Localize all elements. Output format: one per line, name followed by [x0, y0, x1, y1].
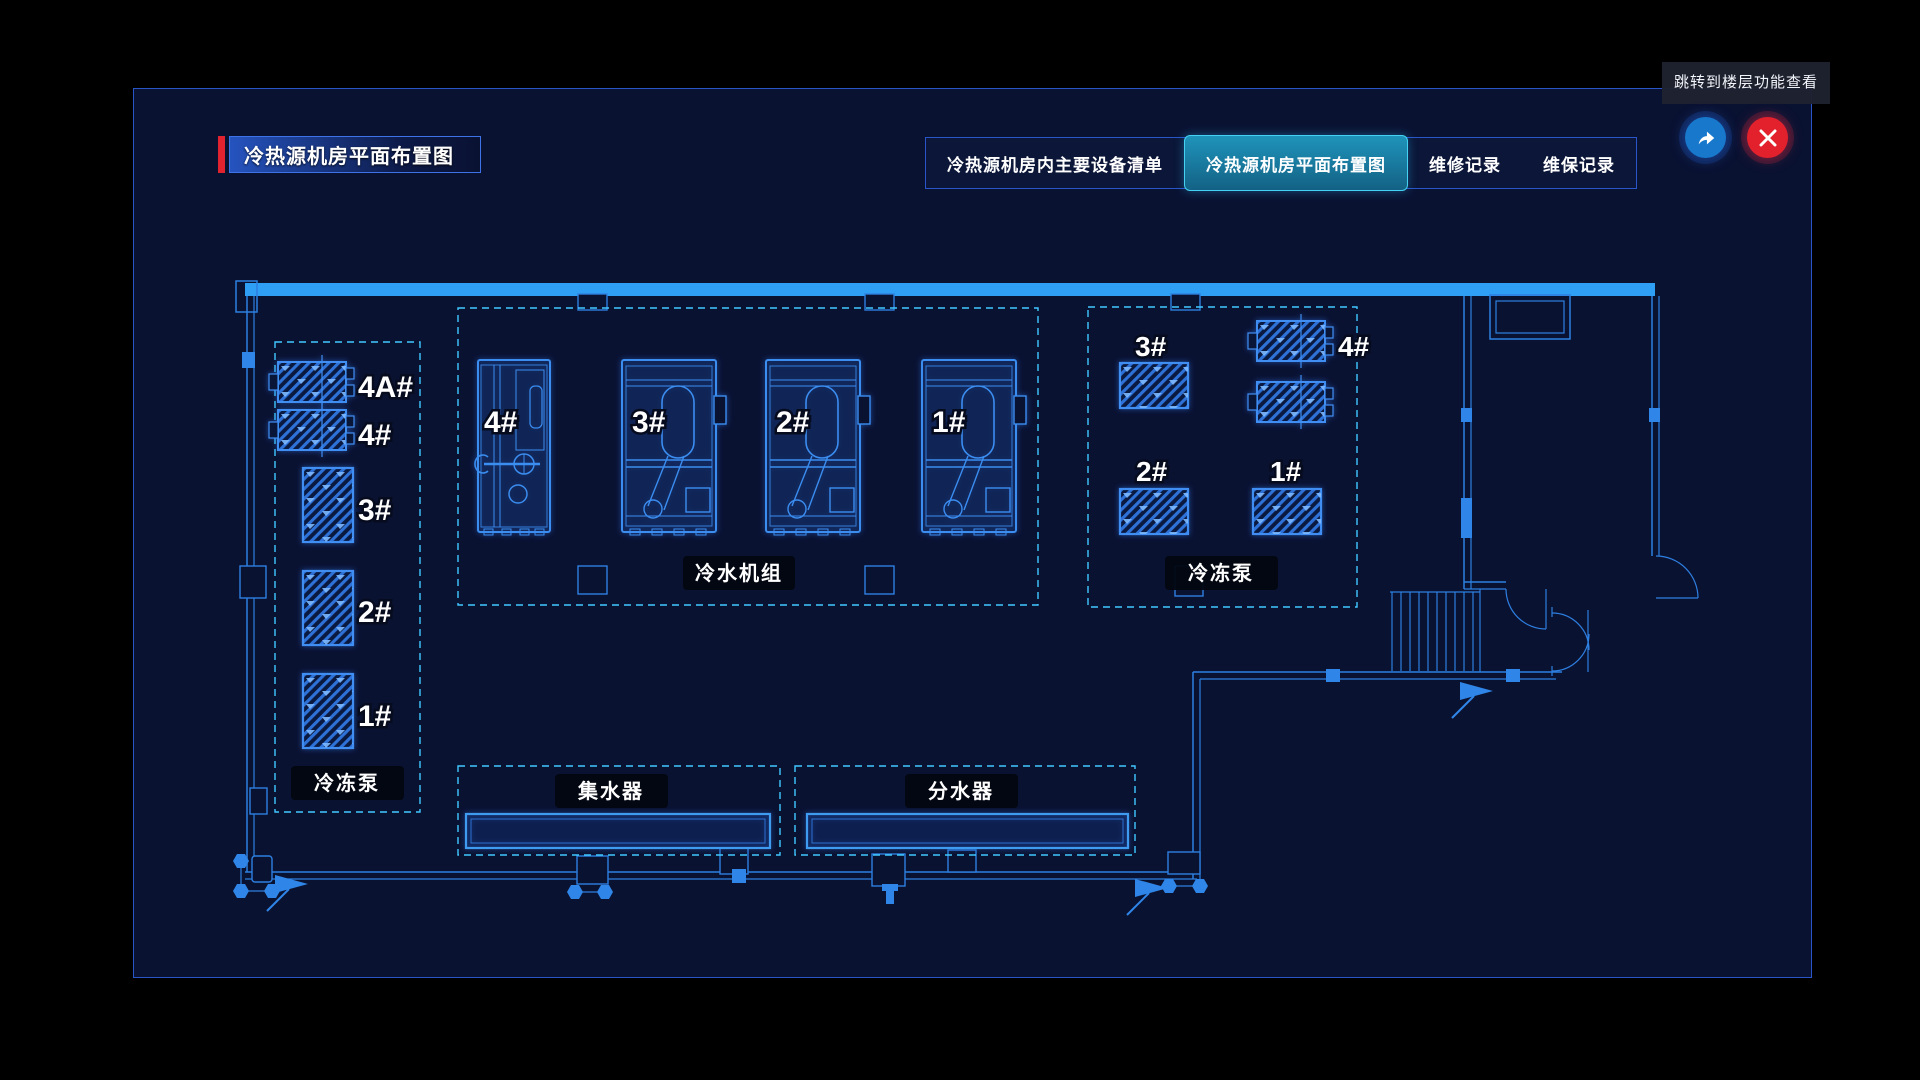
chiller-label: 2#: [776, 406, 810, 439]
pump-4a: [269, 355, 354, 409]
chiller-label: 4#: [484, 406, 518, 439]
pump-1: [1253, 489, 1321, 534]
pump-4a: [1248, 314, 1333, 368]
close-icon: [1759, 129, 1777, 147]
pump-2: [1120, 489, 1188, 534]
left-pump-group: 4A# 4# 3# 2# 1# 冷冻泵: [269, 342, 420, 812]
close-button[interactable]: [1747, 117, 1788, 158]
chiller-2: [766, 360, 870, 535]
window-box: [1490, 295, 1570, 339]
pump-label: 4A#: [358, 371, 413, 404]
chiller-4: [475, 360, 550, 535]
pump-label: 1#: [358, 700, 392, 733]
chiller-group: 4# 3# 2# 1# 冷水机组: [458, 308, 1038, 605]
title-accent-bar: [218, 136, 225, 173]
chiller-1: [922, 360, 1026, 535]
pump-3: [1120, 363, 1188, 408]
chiller-label: 3#: [632, 406, 666, 439]
group-label: 冷冻泵: [314, 771, 380, 795]
group-label: 冷水机组: [695, 561, 783, 585]
tab-floor-plan[interactable]: 冷热源机房平面布置图: [1184, 135, 1408, 191]
screen: 4A# 4# 3# 2# 1# 冷冻泵 4# 3# 2# 1# 冷水机组: [0, 0, 1920, 1080]
collector-group: 集水器: [458, 766, 780, 855]
top-wall: [245, 283, 1655, 296]
chiller-label: 1#: [932, 406, 966, 439]
pump-label: 4#: [1338, 331, 1370, 362]
tab-equipment-list[interactable]: 冷热源机房内主要设备清单: [926, 138, 1184, 188]
tab-maintenance-records[interactable]: 维保记录: [1522, 138, 1636, 188]
right-pump-group: 3# 4# 2# 1# 冷冻泵: [1088, 307, 1370, 607]
pump-4: [269, 403, 354, 457]
page-title: 冷热源机房平面布置图: [218, 136, 481, 173]
pump-label: 1#: [1270, 456, 1302, 487]
page-title-text: 冷热源机房平面布置图: [244, 140, 454, 169]
jump-to-floor-button[interactable]: [1685, 117, 1726, 158]
collector-label: 集水器: [577, 779, 644, 803]
group-label: 冷冻泵: [1188, 561, 1254, 585]
distributor-group: 分水器: [795, 766, 1135, 855]
pump-label: 2#: [358, 596, 392, 629]
share-arrow-icon: [1695, 127, 1717, 149]
pump-label: 2#: [1136, 456, 1168, 487]
pump-label: 4#: [358, 419, 392, 452]
pump-label: 3#: [358, 494, 392, 527]
doors: [1506, 556, 1698, 676]
tab-bar: 冷热源机房内主要设备清单 冷热源机房平面布置图 维修记录 维保记录: [925, 137, 1637, 189]
stairs: [1390, 592, 1480, 671]
flow-arrow: [1452, 682, 1493, 718]
flow-arrow: [1127, 879, 1168, 915]
jump-tooltip: 跳转到楼层功能查看: [1662, 62, 1830, 104]
pump-3: [303, 468, 353, 542]
pump-4b: [1248, 375, 1333, 429]
tab-repair-records[interactable]: 维修记录: [1408, 138, 1522, 188]
pump-1: [303, 674, 353, 748]
pump-label: 3#: [1135, 331, 1167, 362]
chiller-3: [622, 360, 726, 535]
pump-2: [303, 571, 353, 645]
distributor-label: 分水器: [928, 780, 994, 803]
